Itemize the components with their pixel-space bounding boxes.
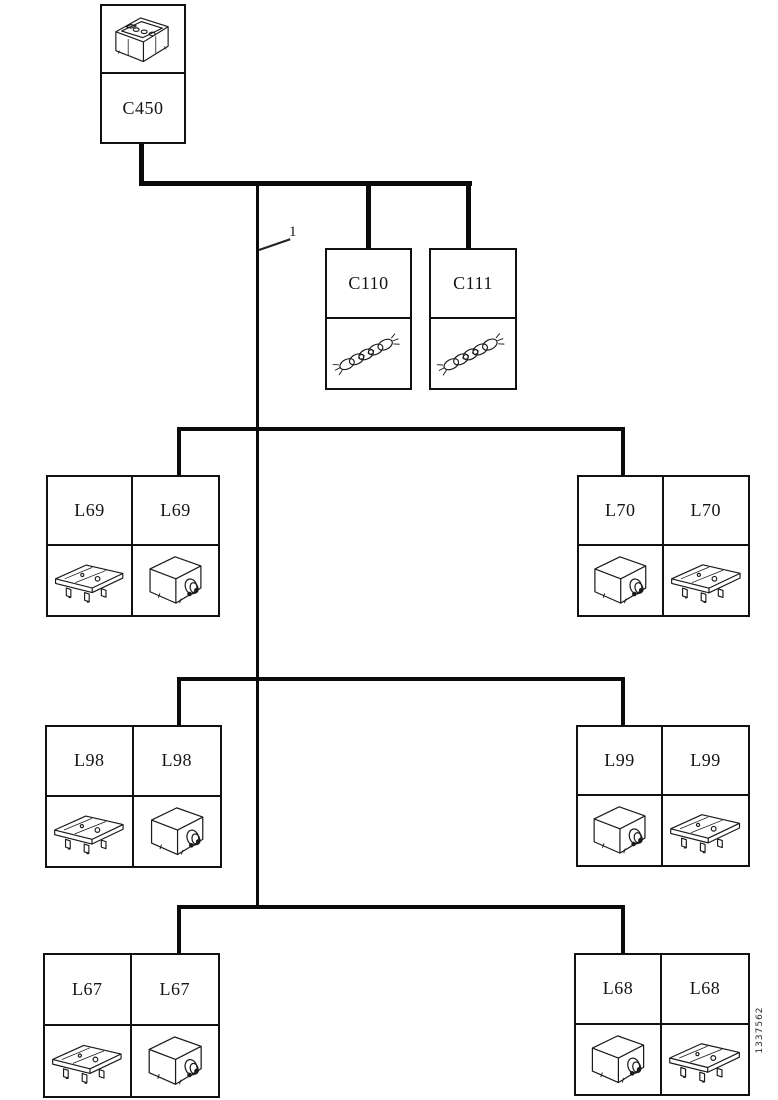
component-group-l68: L68 L68 <box>574 953 750 1096</box>
lamp-unit-icon <box>136 550 214 611</box>
l99-left-image-cell <box>578 796 663 865</box>
lamp-unit-icon <box>137 801 217 862</box>
bracket-lamp-icon <box>50 801 128 862</box>
l69-left-label-cell: L69 <box>48 477 133 546</box>
l99-right-image-cell <box>663 796 748 865</box>
lamp-unit-icon <box>135 1030 215 1092</box>
component-group-l69: L69 L69 <box>46 475 220 617</box>
bracket-lamp-icon <box>665 1029 744 1090</box>
l70-right-image-cell <box>664 546 749 615</box>
callout-label: 1 <box>289 224 297 241</box>
part-label: C450 <box>122 98 163 119</box>
l68-left-label-cell: L68 <box>576 955 662 1025</box>
l99-right-label-cell: L99 <box>663 727 748 796</box>
row2-left-drop-line <box>177 677 181 725</box>
l70-left-label-cell: L70 <box>579 477 664 546</box>
component-box-c450: C450 <box>100 4 186 144</box>
callout-leader-line <box>259 238 291 251</box>
l98-right-label-cell: L98 <box>134 727 221 797</box>
part-label: L99 <box>604 750 635 771</box>
l98-left-image-cell <box>47 797 134 867</box>
part-label: L70 <box>691 500 722 521</box>
c111-label-cell: C111 <box>431 250 515 319</box>
c110-label-cell: C110 <box>327 250 410 319</box>
part-label: C111 <box>453 273 493 294</box>
diagram-canvas: 1 C450 C110 C111 <box>0 0 778 1100</box>
c111-drop-line <box>466 181 471 248</box>
l68-right-image-cell <box>662 1025 748 1095</box>
braided-strap-icon <box>330 323 406 384</box>
l99-left-label-cell: L99 <box>578 727 663 796</box>
part-label: L99 <box>690 750 721 771</box>
lamp-unit-icon <box>582 550 658 611</box>
l70-left-image-cell <box>579 546 664 615</box>
c450-image-cell <box>102 6 184 74</box>
part-label: L67 <box>160 979 191 1000</box>
row2-right-drop-line <box>621 677 625 725</box>
part-label: L67 <box>72 979 103 1000</box>
component-group-l70: L70 L70 <box>577 475 750 617</box>
bracket-lamp-icon <box>667 550 745 611</box>
component-group-l98: L98 L98 <box>45 725 222 868</box>
row3-right-drop-line <box>621 905 625 953</box>
bracket-lamp-icon <box>666 800 744 861</box>
l69-left-image-cell <box>48 546 133 615</box>
component-box-c110: C110 <box>325 248 412 390</box>
row3-bus-line <box>177 905 625 909</box>
row1-left-drop-line <box>177 427 181 475</box>
l67-right-label-cell: L67 <box>132 955 219 1026</box>
part-label: C110 <box>348 273 388 294</box>
braided-strap-icon <box>434 323 511 384</box>
top-bus-line <box>139 181 472 186</box>
lamp-unit-icon <box>581 800 657 861</box>
l67-right-image-cell <box>132 1026 219 1097</box>
component-group-l99: L99 L99 <box>576 725 750 867</box>
l98-right-image-cell <box>134 797 221 867</box>
part-label: L98 <box>74 750 105 771</box>
part-label: L69 <box>160 500 191 521</box>
l67-left-image-cell <box>45 1026 132 1097</box>
l69-right-label-cell: L69 <box>133 477 218 546</box>
part-label: L68 <box>690 978 721 999</box>
c450-label-cell: C450 <box>102 74 184 142</box>
l70-right-label-cell: L70 <box>664 477 749 546</box>
battery-icon <box>105 10 180 68</box>
part-label: L70 <box>605 500 636 521</box>
c450-stem-line <box>139 143 144 186</box>
c110-drop-line <box>366 181 371 248</box>
figure-number: 1337562 <box>754 1000 766 1060</box>
main-spine-line <box>256 181 259 908</box>
bracket-lamp-icon <box>48 1030 126 1092</box>
component-box-c111: C111 <box>429 248 517 390</box>
part-label: L69 <box>74 500 105 521</box>
row3-left-drop-line <box>177 905 181 953</box>
l67-left-label-cell: L67 <box>45 955 132 1026</box>
part-label: L68 <box>603 978 634 999</box>
l68-right-label-cell: L68 <box>662 955 748 1025</box>
c111-image-cell <box>431 319 515 388</box>
l68-left-image-cell <box>576 1025 662 1095</box>
c110-image-cell <box>327 319 410 388</box>
l98-left-label-cell: L98 <box>47 727 134 797</box>
part-label: L98 <box>162 750 193 771</box>
row1-right-drop-line <box>621 427 625 475</box>
lamp-unit-icon <box>579 1029 656 1090</box>
bracket-lamp-icon <box>51 550 127 611</box>
row1-bus-line <box>177 427 625 431</box>
l69-right-image-cell <box>133 546 218 615</box>
row2-bus-line <box>177 677 625 681</box>
component-group-l67: L67 L67 <box>43 953 220 1098</box>
